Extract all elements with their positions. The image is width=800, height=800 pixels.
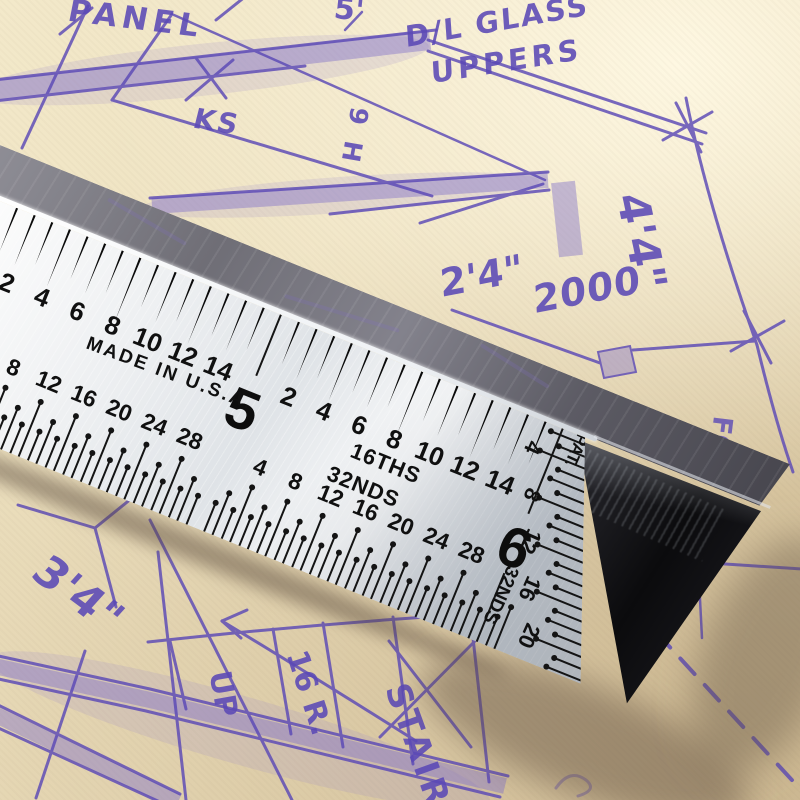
- tick-16th: [456, 392, 478, 437]
- tick-16th: [83, 243, 108, 295]
- tick-16th: [279, 321, 301, 366]
- tick-16th: [244, 307, 266, 352]
- tick-16th: [350, 349, 372, 394]
- tick-16th: [33, 221, 55, 266]
- tick-16th: [209, 292, 231, 337]
- photo-scene: PANEL D/L GLASS UPPERS 5' KS 9 H 4'4" 2'…: [0, 0, 800, 800]
- label-five-feet: 5': [332, 0, 366, 29]
- tick-16th: [315, 335, 337, 380]
- tick-16th: [294, 328, 319, 380]
- tick-16th: [153, 271, 178, 323]
- end-tick: [536, 638, 591, 662]
- tick-16th: [385, 364, 407, 409]
- tick-16th: [103, 250, 125, 295]
- tick-16th: [326, 342, 354, 401]
- tick-16th: [12, 214, 37, 266]
- tick-16th: [174, 278, 196, 323]
- tick-16th: [68, 236, 90, 281]
- label-ks: KS: [190, 102, 243, 141]
- tick-16th: [44, 228, 72, 287]
- tick-16th: [491, 406, 513, 451]
- tick-32nd: [185, 496, 198, 525]
- tick-16th: [0, 207, 19, 252]
- tick-16th: [185, 285, 213, 344]
- end-scale-number: 20: [509, 612, 549, 659]
- tick-16th: [467, 399, 495, 458]
- inch-5-tick-line: [255, 314, 282, 376]
- tick-16th: [435, 385, 460, 437]
- end-tick: [538, 497, 593, 521]
- tick-16th: [139, 264, 161, 309]
- end-tick: [537, 591, 592, 615]
- tick-16th: [224, 300, 249, 352]
- tick-16th: [365, 357, 390, 409]
- tick-16th: [420, 378, 442, 423]
